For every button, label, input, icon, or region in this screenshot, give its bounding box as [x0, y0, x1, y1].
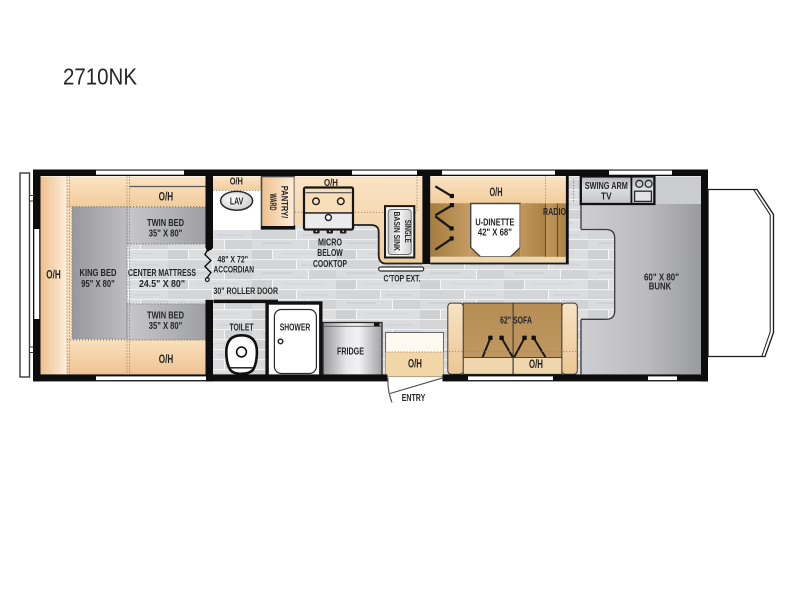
svg-text:ACCORDIAN: ACCORDIAN [214, 264, 255, 275]
svg-text:95" X 80": 95" X 80" [81, 278, 115, 290]
svg-text:COOKTOP: COOKTOP [313, 259, 347, 270]
svg-text:PANTRY/: PANTRY/ [279, 186, 290, 219]
svg-text:SHOWER: SHOWER [280, 322, 311, 333]
svg-text:O/H: O/H [159, 352, 174, 366]
svg-text:TOILET: TOILET [230, 322, 254, 333]
svg-text:TV: TV [601, 190, 612, 202]
svg-text:30" ROLLER DOOR: 30" ROLLER DOOR [214, 286, 279, 296]
svg-text:62" SOFA: 62" SOFA [500, 315, 532, 327]
svg-text:24.5" X 80": 24.5" X 80" [139, 278, 185, 290]
svg-text:O/H: O/H [159, 190, 174, 204]
svg-text:O/H: O/H [490, 185, 503, 199]
svg-text:42" X 68": 42" X 68" [478, 227, 512, 239]
svg-text:BUNK: BUNK [649, 280, 672, 292]
svg-text:FRIDGE: FRIDGE [337, 347, 364, 358]
svg-text:O/H: O/H [230, 176, 243, 187]
svg-text:MICRO: MICRO [318, 237, 342, 248]
svg-text:SINGLE: SINGLE [403, 220, 413, 243]
svg-text:2710NK: 2710NK [63, 64, 138, 90]
svg-text:ENTRY: ENTRY [402, 393, 426, 404]
svg-text:O/H: O/H [46, 268, 61, 282]
svg-text:BELOW: BELOW [317, 248, 343, 259]
svg-text:35" X 80": 35" X 80" [149, 320, 183, 332]
svg-text:C'TOP EXT.: C'TOP EXT. [384, 274, 421, 285]
svg-text:LAV: LAV [230, 197, 244, 208]
svg-text:O/H: O/H [529, 359, 543, 371]
svg-text:35" X 80": 35" X 80" [149, 227, 183, 239]
svg-text:WARD: WARD [267, 194, 278, 211]
svg-text:O/H: O/H [408, 359, 422, 371]
svg-text:BASIN SINK: BASIN SINK [392, 211, 402, 251]
svg-text:RADIO: RADIO [543, 207, 566, 218]
